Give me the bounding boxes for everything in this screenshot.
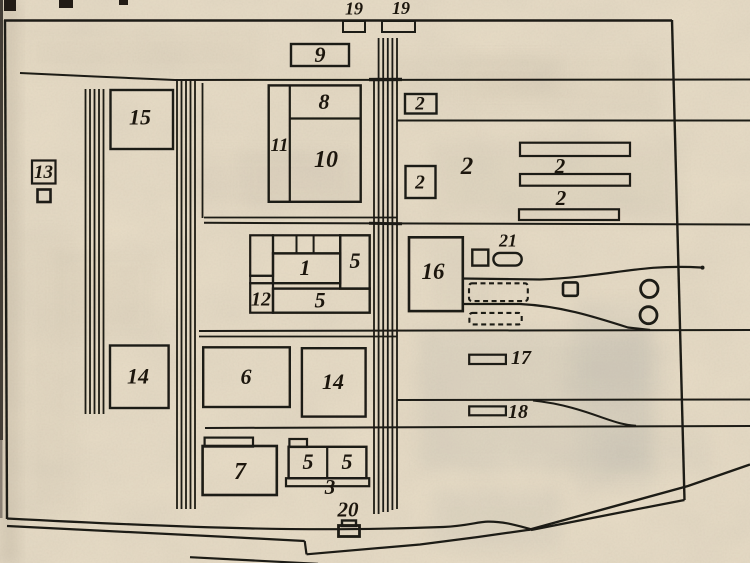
svg-text:1: 1 [300,255,311,280]
svg-text:17: 17 [511,347,532,369]
svg-text:10: 10 [314,147,338,173]
svg-text:5: 5 [350,248,361,273]
svg-text:9: 9 [315,42,326,67]
svg-text:2: 2 [460,153,474,180]
svg-text:15: 15 [129,105,151,130]
svg-text:19: 19 [392,0,410,18]
svg-text:8: 8 [319,89,330,114]
svg-text:13: 13 [34,162,53,183]
svg-text:2: 2 [555,186,567,210]
svg-text:5: 5 [342,449,353,474]
svg-text:20: 20 [337,498,360,522]
svg-text:19: 19 [345,0,363,19]
svg-text:21: 21 [498,231,517,251]
svg-text:2: 2 [414,94,425,115]
svg-text:6: 6 [241,364,252,389]
svg-text:12: 12 [251,289,271,311]
svg-text:2: 2 [414,173,425,194]
svg-text:2: 2 [554,154,566,178]
svg-text:16: 16 [422,259,446,284]
svg-text:3: 3 [324,475,336,499]
svg-text:5: 5 [303,449,314,474]
svg-text:11: 11 [271,135,289,156]
svg-text:7: 7 [234,459,247,485]
svg-text:14: 14 [127,364,149,389]
svg-text:14: 14 [322,369,344,394]
svg-text:5: 5 [315,288,326,313]
svg-text:18: 18 [508,401,528,423]
